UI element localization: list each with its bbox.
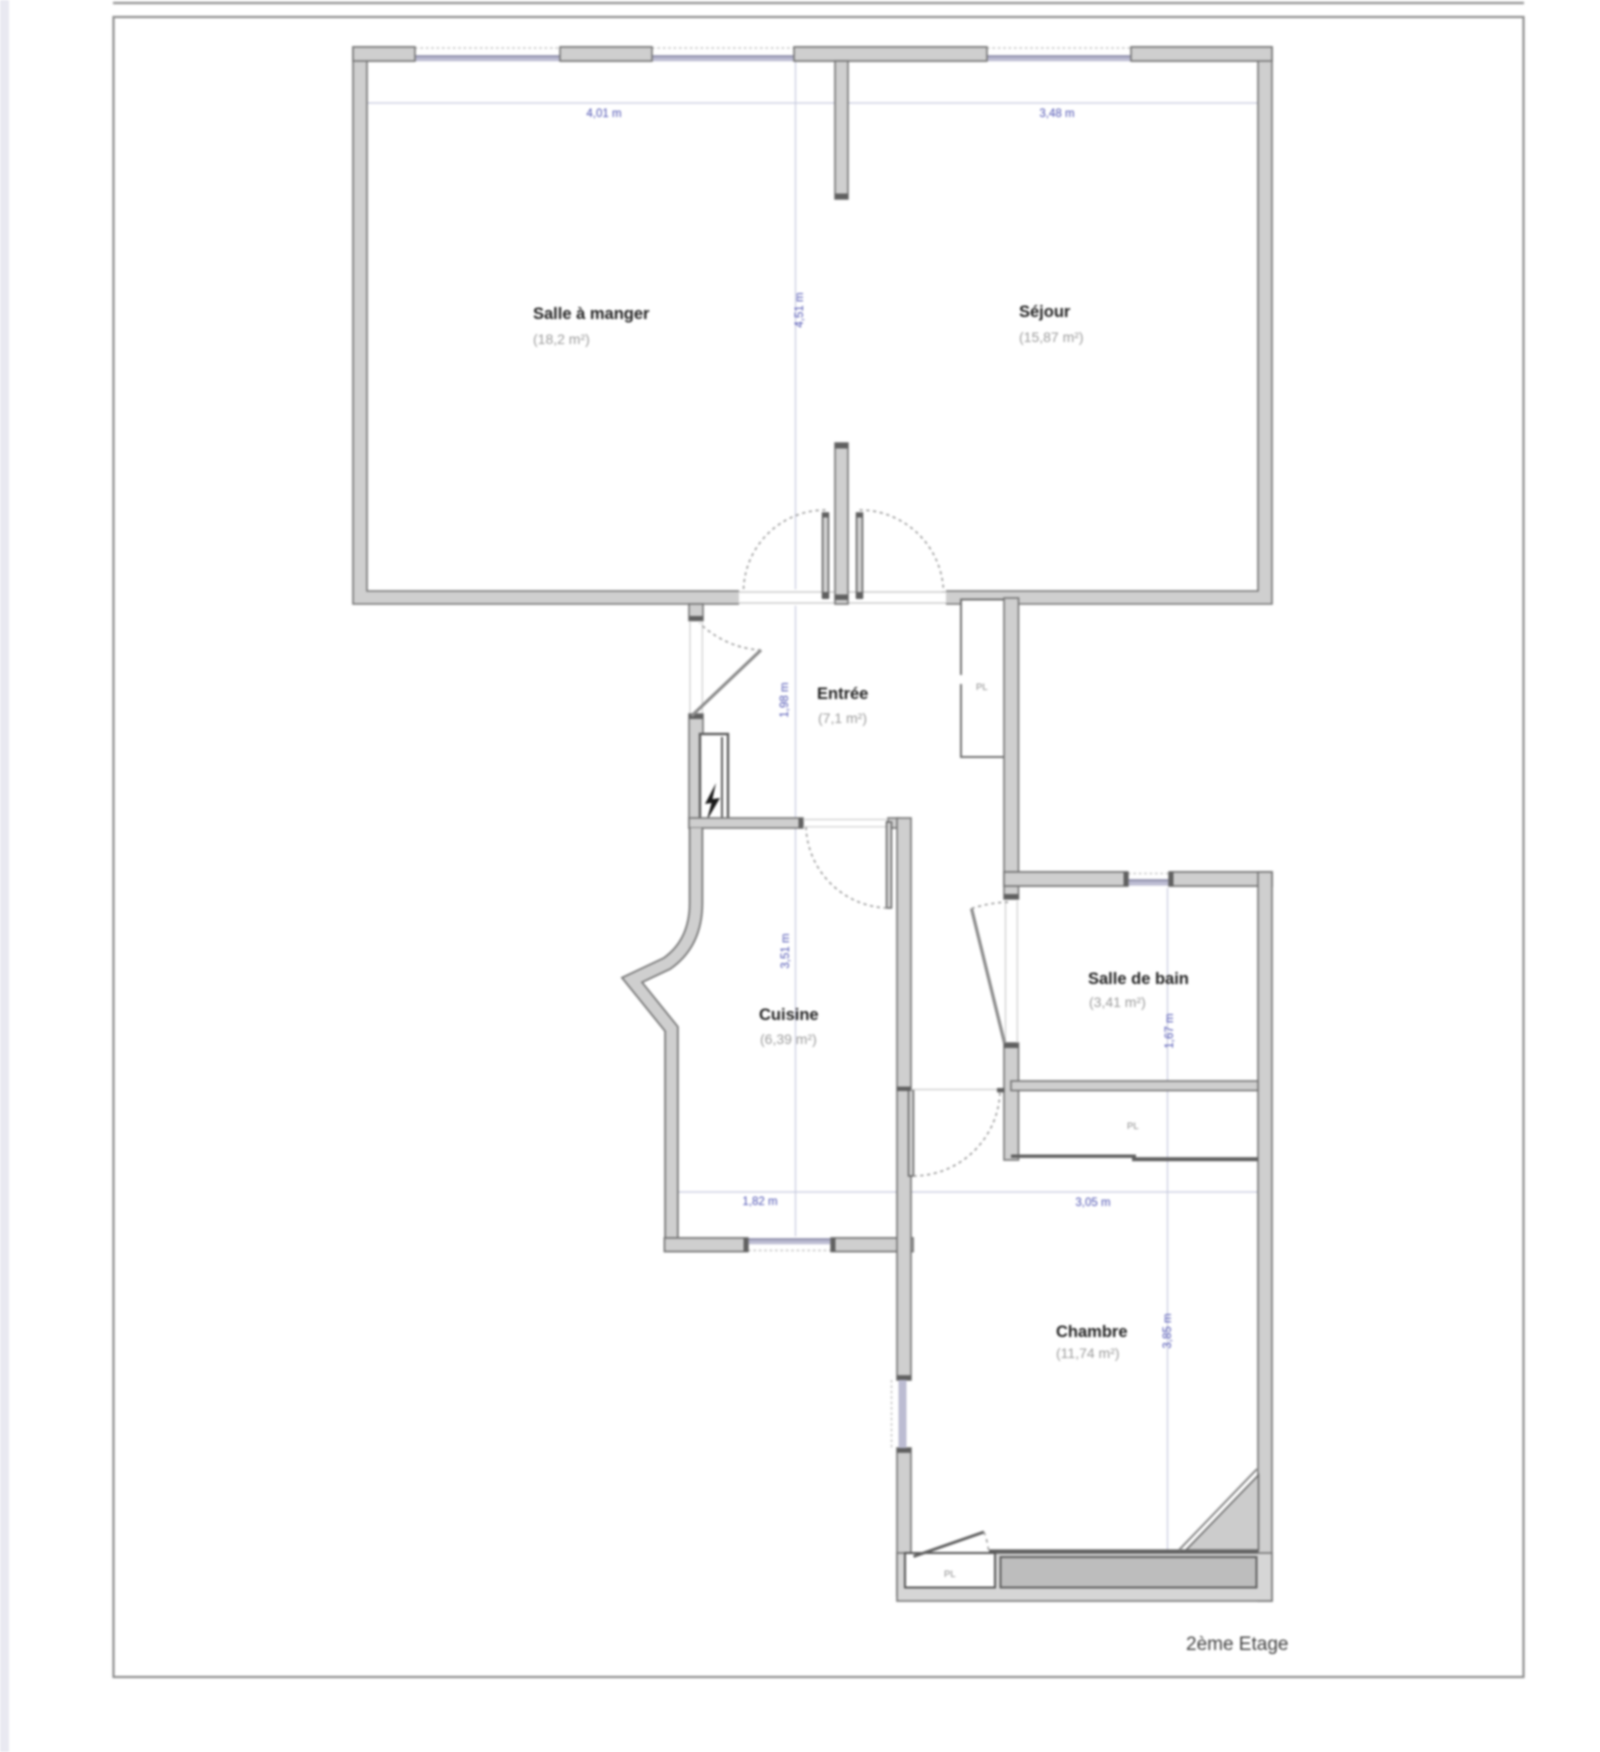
svg-text:Chambre: Chambre bbox=[1056, 1323, 1128, 1341]
svg-text:Salle de bain: Salle de bain bbox=[1088, 970, 1189, 988]
svg-text:4,01 m: 4,01 m bbox=[586, 108, 621, 120]
svg-text:(6,39 m²): (6,39 m²) bbox=[760, 1031, 817, 1047]
svg-text:3,51 m: 3,51 m bbox=[780, 933, 792, 968]
svg-text:3,85 m: 3,85 m bbox=[1162, 1313, 1174, 1348]
svg-text:(3,41 m²): (3,41 m²) bbox=[1089, 994, 1146, 1010]
svg-text:Salle à manger: Salle à manger bbox=[533, 305, 650, 323]
svg-text:(15,87 m²): (15,87 m²) bbox=[1019, 329, 1084, 345]
svg-text:4,51 m: 4,51 m bbox=[794, 292, 806, 327]
svg-text:PL: PL bbox=[944, 1569, 956, 1580]
svg-text:1,67 m: 1,67 m bbox=[1164, 1013, 1176, 1048]
svg-text:Séjour: Séjour bbox=[1019, 303, 1071, 321]
svg-text:Entrée: Entrée bbox=[817, 685, 868, 703]
svg-text:(18,2 m²): (18,2 m²) bbox=[533, 331, 590, 347]
svg-text:1,98 m: 1,98 m bbox=[779, 682, 791, 717]
svg-text:2ème Etage: 2ème Etage bbox=[1186, 1634, 1288, 1655]
svg-text:1,82 m: 1,82 m bbox=[742, 1196, 777, 1208]
svg-text:(11,74 m²): (11,74 m²) bbox=[1056, 1345, 1120, 1361]
svg-text:3,05 m: 3,05 m bbox=[1075, 1197, 1110, 1209]
svg-text:3,48 m: 3,48 m bbox=[1039, 108, 1074, 120]
svg-text:PL: PL bbox=[976, 682, 988, 693]
svg-text:PL: PL bbox=[1127, 1121, 1139, 1132]
svg-text:(7,1 m²): (7,1 m²) bbox=[818, 710, 867, 726]
svg-text:Cuisine: Cuisine bbox=[759, 1006, 819, 1024]
